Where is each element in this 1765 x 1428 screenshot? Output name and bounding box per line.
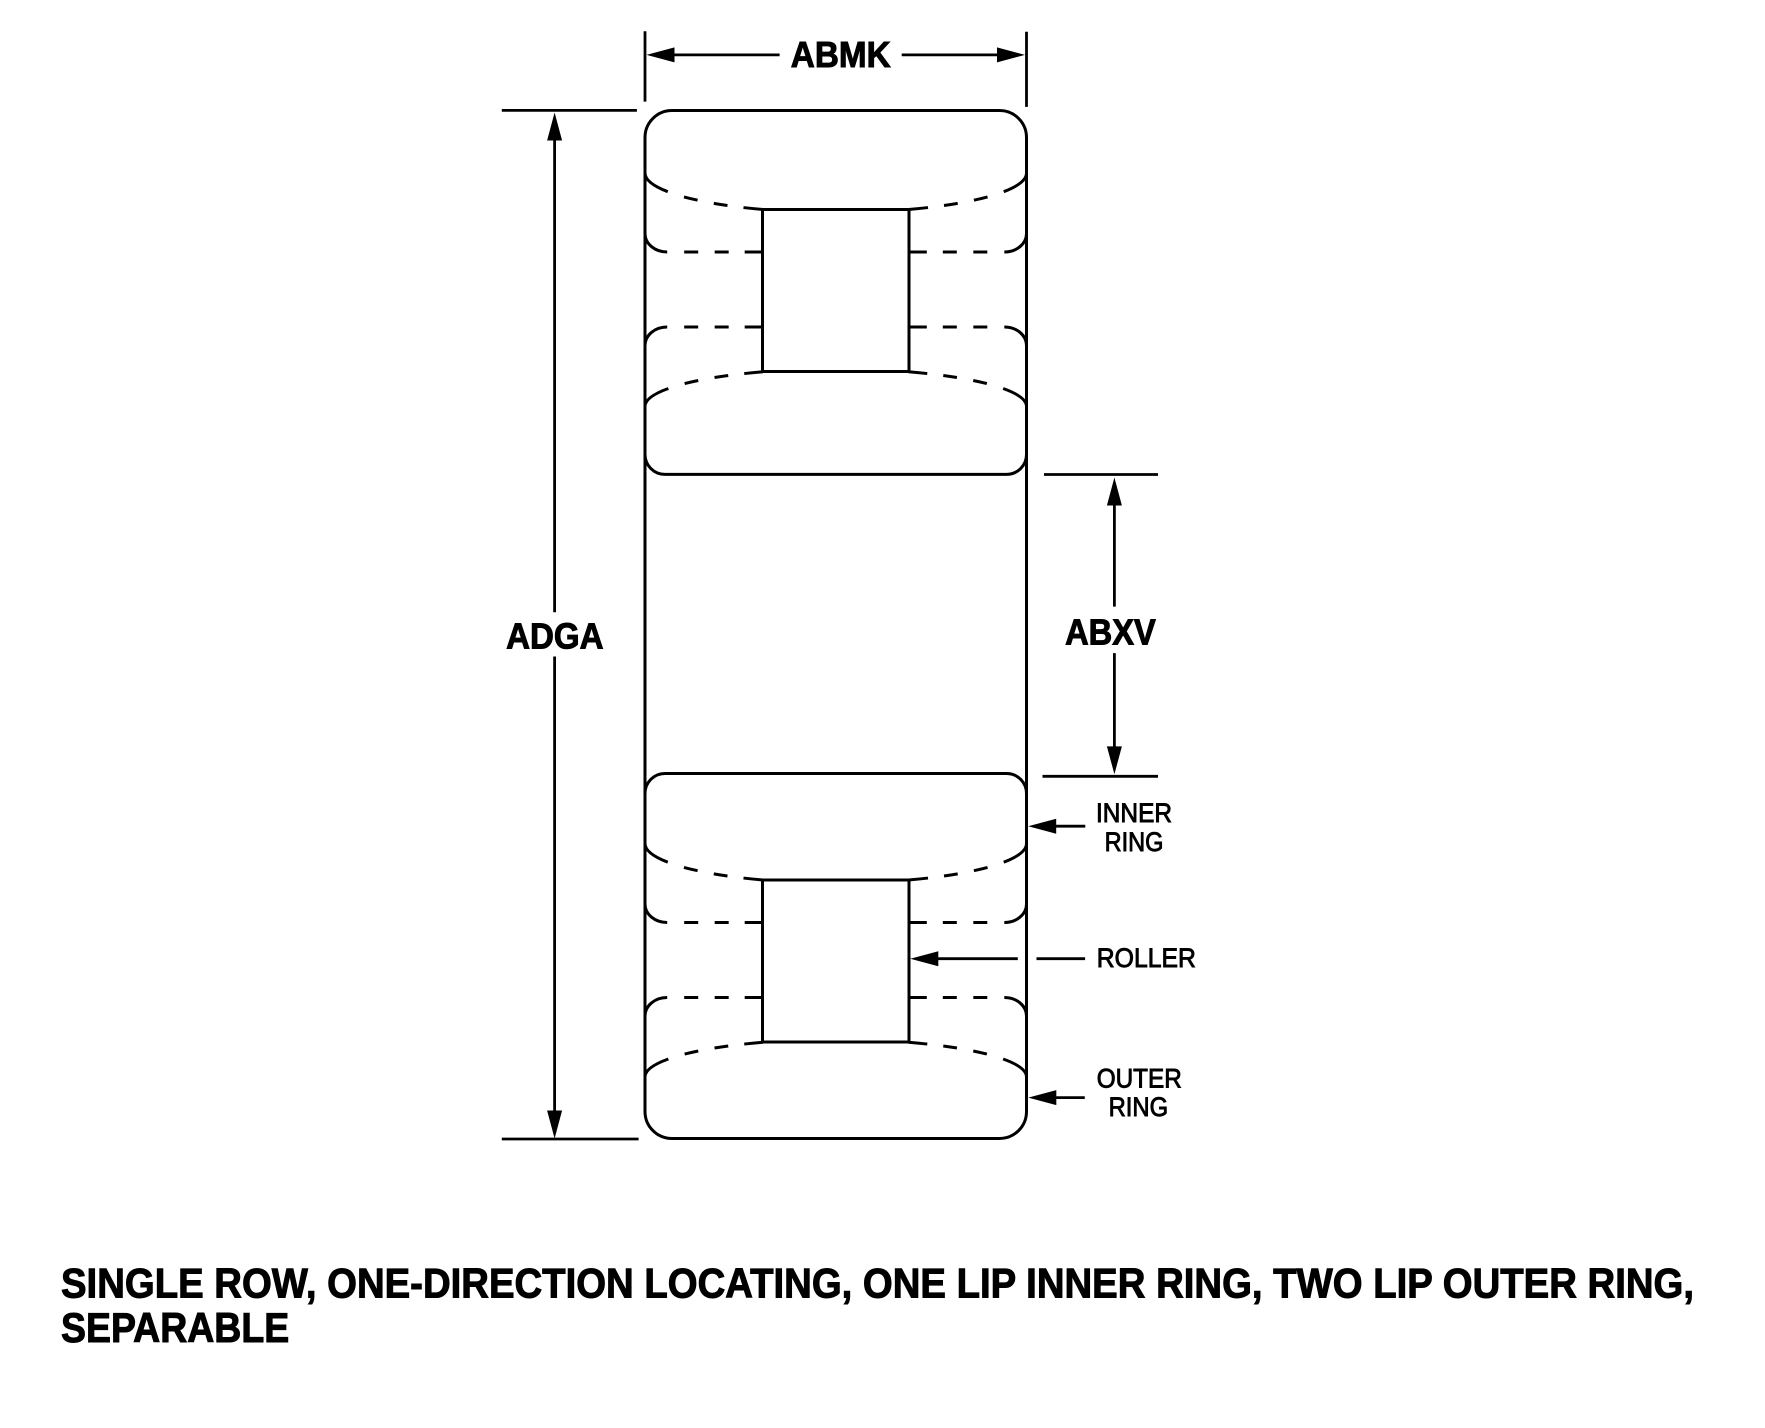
svg-text:RING: RING (1109, 1092, 1169, 1122)
svg-text:SINGLE ROW, ONE-DIRECTION LOCA: SINGLE ROW, ONE-DIRECTION LOCATING, ONE … (61, 1260, 1694, 1306)
svg-text:ROLLER: ROLLER (1097, 943, 1196, 973)
svg-text:RING: RING (1105, 827, 1164, 857)
svg-text:ADGA: ADGA (506, 615, 603, 656)
svg-text:SEPARABLE: SEPARABLE (61, 1305, 289, 1351)
svg-text:OUTER: OUTER (1097, 1064, 1182, 1094)
svg-text:ABMK: ABMK (791, 34, 891, 75)
svg-text:INNER: INNER (1096, 798, 1172, 828)
svg-text:ABXV: ABXV (1065, 612, 1156, 653)
